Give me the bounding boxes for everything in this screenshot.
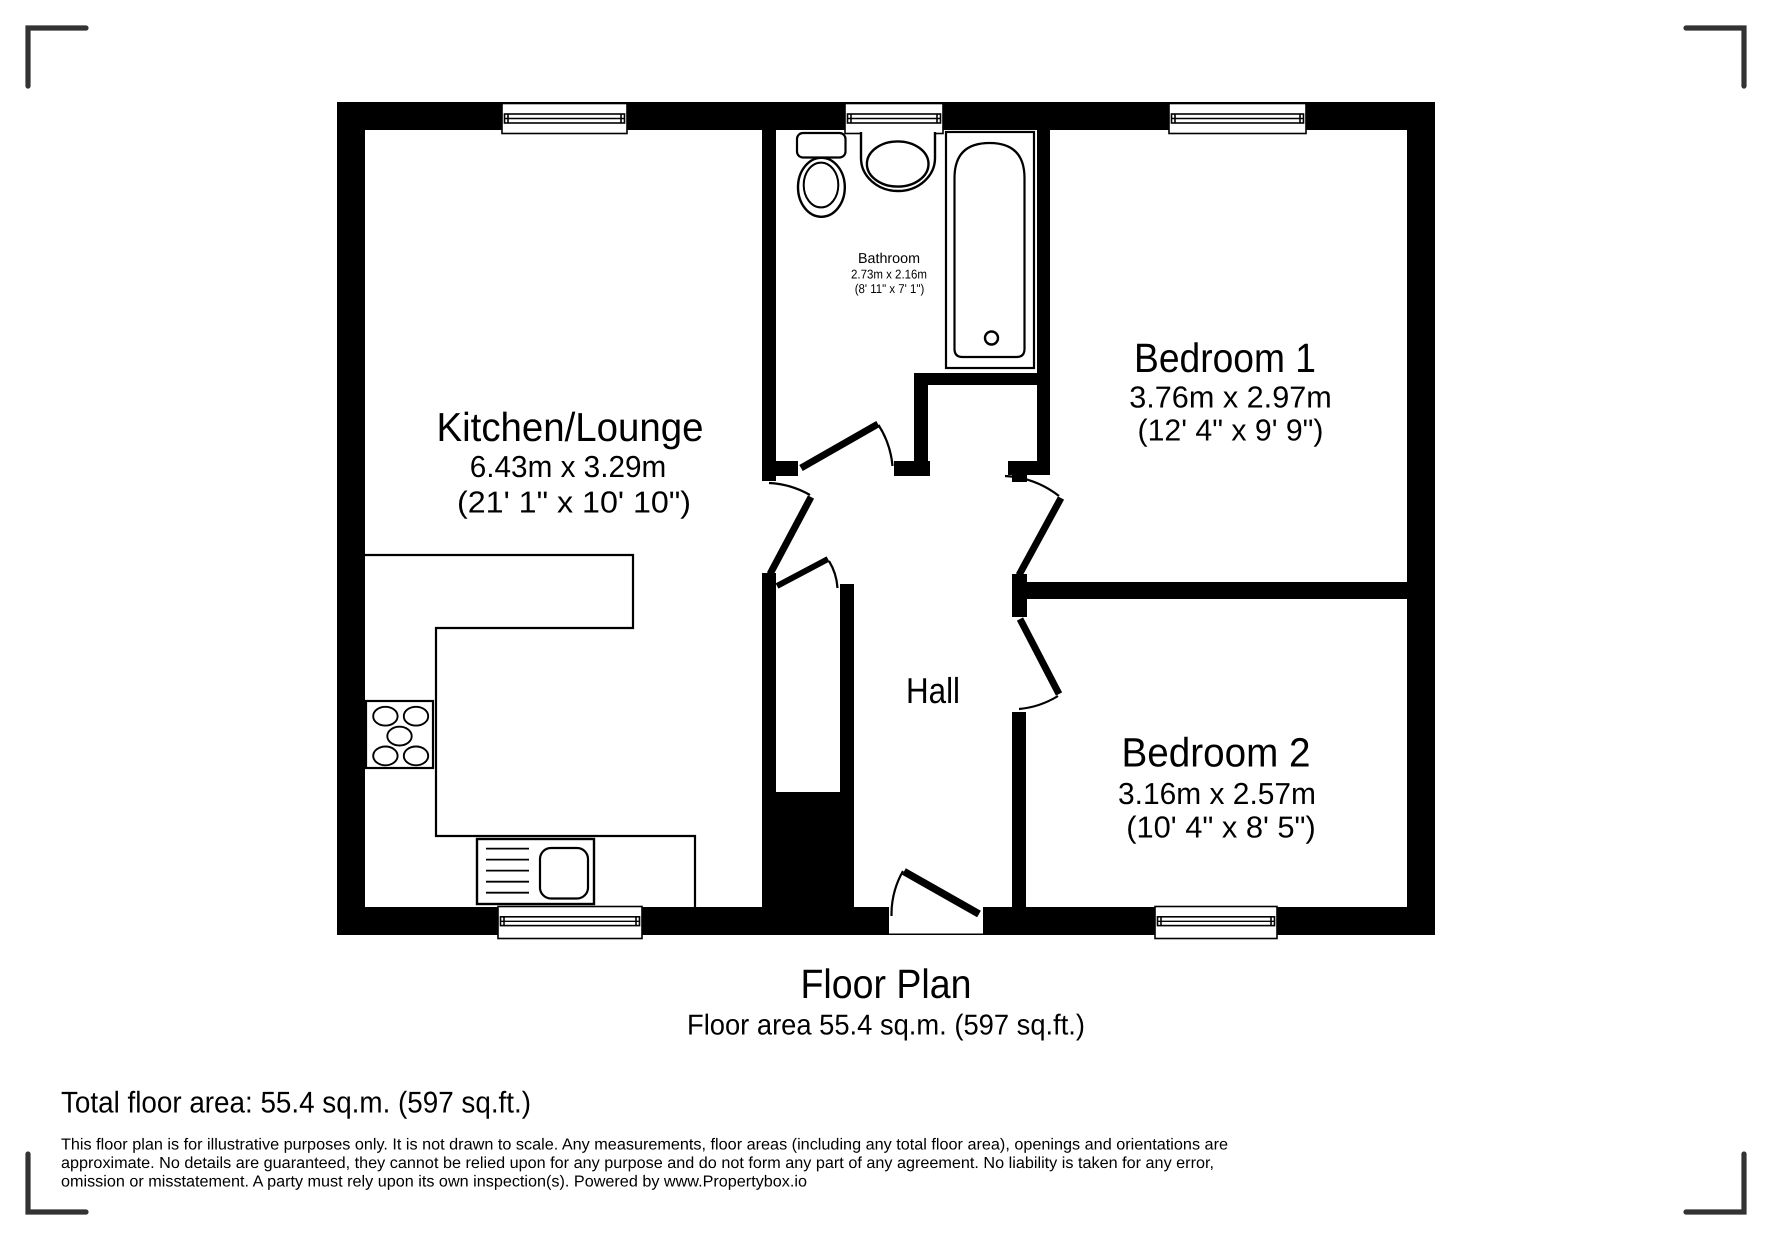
svg-text:Bathroom: Bathroom — [858, 251, 920, 267]
svg-text:Bedroom 2: Bedroom 2 — [1122, 730, 1311, 776]
svg-text:Floor Plan: Floor Plan — [801, 961, 972, 1007]
svg-text:Floor area 55.4 sq.m. (597 sq.: Floor area 55.4 sq.m. (597 sq.ft.) — [687, 1010, 1085, 1042]
svg-text:Kitchen/Lounge: Kitchen/Lounge — [437, 404, 704, 450]
svg-text:approximate. No details are gu: approximate. No details are guaranteed, … — [61, 1155, 1214, 1172]
svg-text:(21' 1" x 10' 10"): (21' 1" x 10' 10") — [457, 486, 691, 520]
svg-text:(12' 4" x 9' 9"): (12' 4" x 9' 9") — [1138, 414, 1324, 448]
svg-text:(8' 11" x 7' 1"): (8' 11" x 7' 1") — [855, 281, 925, 296]
svg-text:2.73m x 2.16m: 2.73m x 2.16m — [851, 267, 927, 282]
svg-text:(10' 4" x 8' 5"): (10' 4" x 8' 5") — [1126, 811, 1316, 845]
svg-text:3.76m x 2.97m: 3.76m x 2.97m — [1129, 381, 1332, 415]
svg-text:This floor plan is for illustr: This floor plan is for illustrative purp… — [61, 1137, 1228, 1154]
svg-text:Bedroom 1: Bedroom 1 — [1134, 335, 1316, 381]
svg-text:Total floor area: 55.4 sq.m. (: Total floor area: 55.4 sq.m. (597 sq.ft.… — [61, 1087, 531, 1120]
svg-text:Hall: Hall — [906, 670, 960, 711]
svg-text:3.16m x 2.57m: 3.16m x 2.57m — [1118, 777, 1316, 811]
svg-text:6.43m x 3.29m: 6.43m x 3.29m — [470, 450, 667, 484]
svg-text:omission or misstatement. A pa: omission or misstatement. A party must r… — [61, 1174, 807, 1191]
